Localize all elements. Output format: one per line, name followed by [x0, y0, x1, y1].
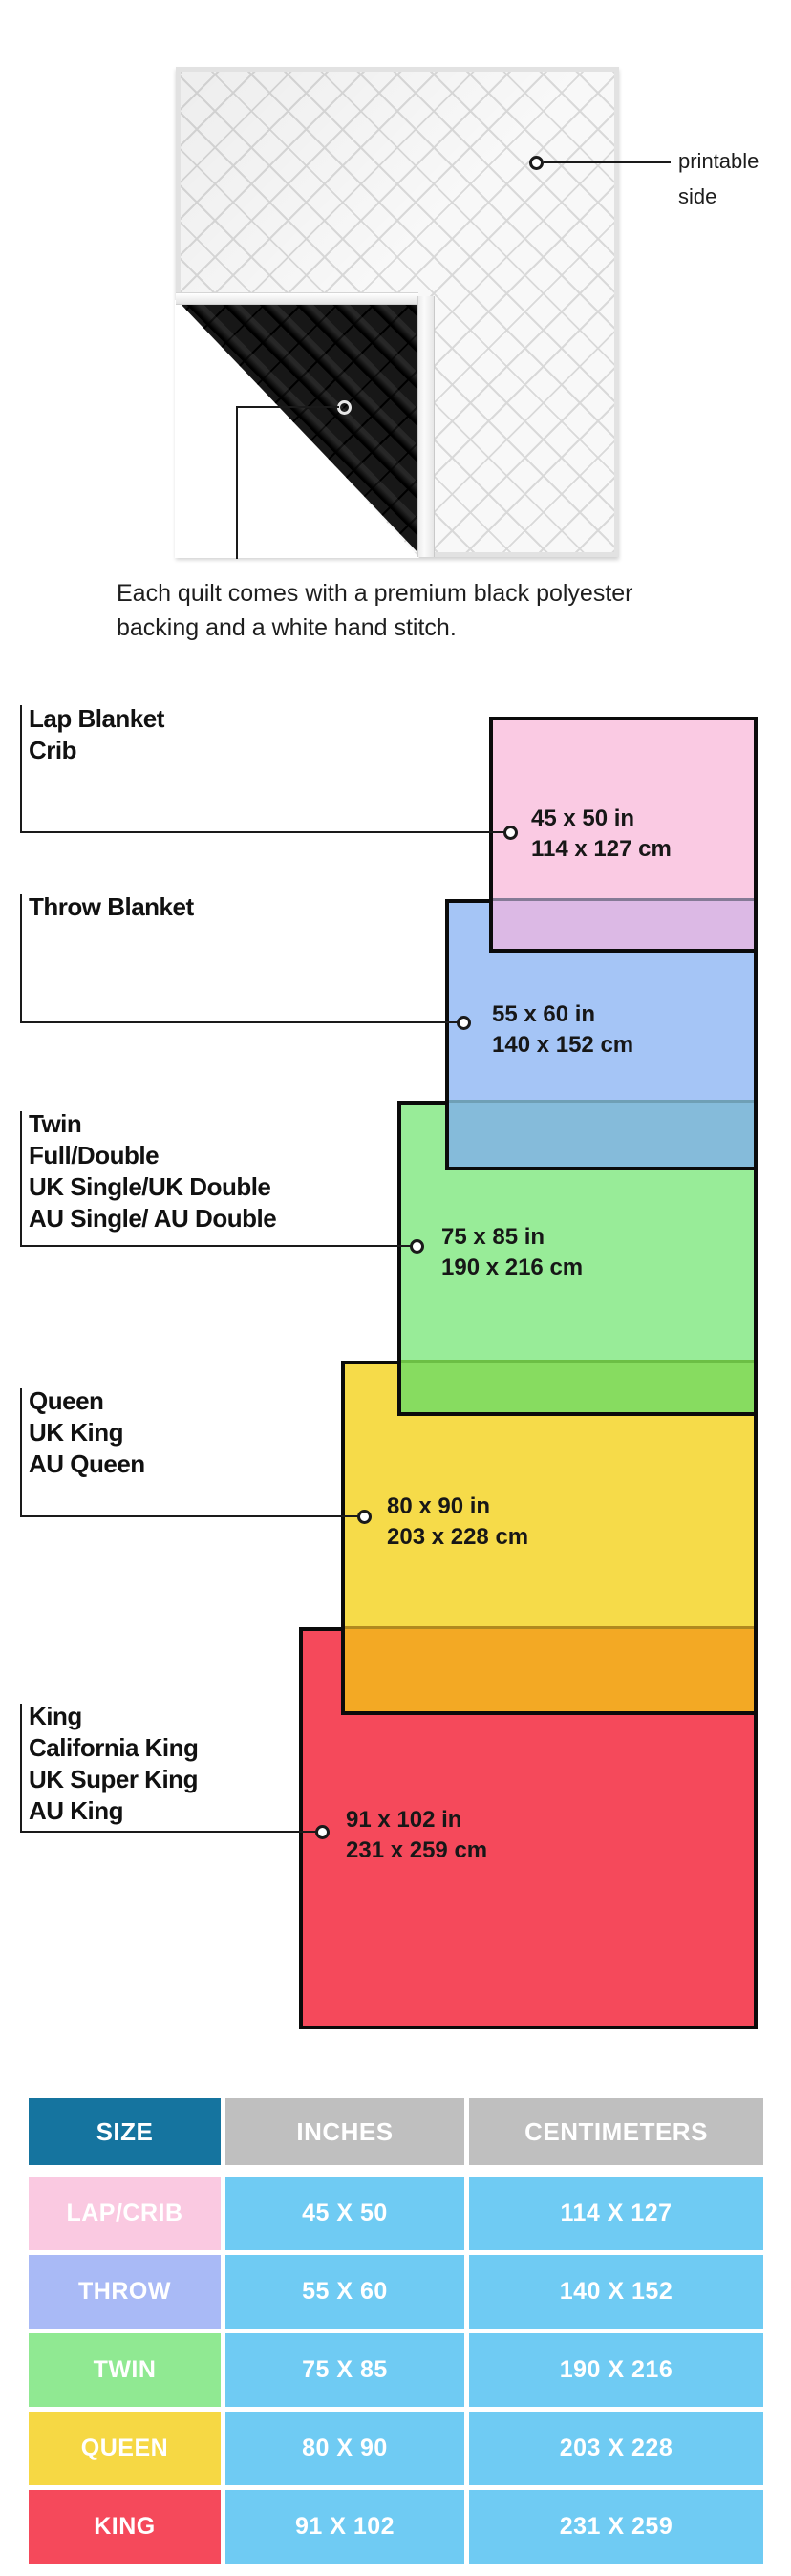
twin-marker-icon — [410, 1239, 424, 1254]
throw-over-twin-overlap — [449, 1100, 754, 1167]
table-row-throw-centimeters: 140 X 152 — [469, 2255, 763, 2329]
table-row-king-inches: 91 X 102 — [225, 2490, 464, 2564]
table-row-king-centimeters: 231 X 259 — [469, 2490, 763, 2564]
quilt-fold-flap-edge — [417, 296, 435, 557]
table-row-queen-size: QUEEN — [29, 2412, 221, 2485]
king-label-line: UK Super King — [29, 1764, 198, 1795]
queen-marker-icon — [357, 1510, 372, 1524]
king-label-line: AU King — [29, 1795, 198, 1827]
size-table: SIZE INCHES CENTIMETERS LAP/CRIB 45 X 50… — [29, 2098, 764, 2564]
king-leader-line-v — [20, 1704, 22, 1832]
table-header-inches: INCHES — [225, 2098, 464, 2165]
twin-over-queen-overlap — [401, 1360, 754, 1412]
king-leader-line-h — [20, 1831, 316, 1833]
lap-marker-icon — [503, 826, 518, 840]
twin-leader-line-v — [20, 1111, 22, 1246]
backing-caption: Each quilt comes with a premium black po… — [117, 576, 633, 645]
table-row-twin-size: TWIN — [29, 2333, 221, 2407]
throw-dimensions-cm: 140 x 152 cm — [492, 1030, 633, 1061]
queen-dimensions: 80 x 90 in 203 x 228 cm — [387, 1492, 528, 1553]
printable-side-marker-icon — [529, 156, 544, 170]
printable-side-label: printable side — [678, 143, 759, 214]
table-header-size: SIZE — [29, 2098, 221, 2165]
queen-label-line: AU Queen — [29, 1449, 145, 1480]
table-row-lap-size: LAP/CRIB — [29, 2177, 221, 2250]
printable-side-leader-line — [544, 161, 671, 163]
twin-label-line: Full/Double — [29, 1140, 276, 1171]
table-row-twin-inches: 75 X 85 — [225, 2333, 464, 2407]
black-backing-marker-icon — [337, 400, 352, 415]
lap-label-line: Crib — [29, 735, 164, 766]
queen-over-king-overlap — [345, 1626, 754, 1711]
throw-label-line: Throw Blanket — [29, 891, 194, 923]
throw-dimensions: 55 x 60 in 140 x 152 cm — [492, 999, 633, 1061]
twin-dimensions-cm: 190 x 216 cm — [441, 1253, 583, 1283]
table-row-throw-size: THROW — [29, 2255, 221, 2329]
king-label: King California King UK Super King AU Ki… — [29, 1701, 198, 1827]
printable-side-label-line2: side — [678, 179, 759, 214]
black-backing-leader-line-v — [236, 406, 238, 559]
king-dimensions-cm: 231 x 259 cm — [346, 1835, 487, 1866]
queen-dimensions-cm: 203 x 228 cm — [387, 1522, 528, 1553]
queen-leader-line-h — [20, 1515, 358, 1517]
throw-leader-line-h — [20, 1021, 458, 1023]
throw-label: Throw Blanket — [29, 891, 194, 923]
lap-dimensions: 45 x 50 in 114 x 127 cm — [531, 804, 672, 865]
lap-leader-line-v — [20, 705, 22, 832]
lap-label: Lap Blanket Crib — [29, 703, 164, 766]
table-row-queen-centimeters: 203 X 228 — [469, 2412, 763, 2485]
queen-label-line: Queen — [29, 1385, 145, 1417]
twin-label-line: AU Single/ AU Double — [29, 1203, 276, 1234]
twin-leader-line-h — [20, 1245, 411, 1247]
king-dimensions: 91 x 102 in 231 x 259 cm — [346, 1805, 487, 1866]
king-label-line: California King — [29, 1732, 198, 1764]
twin-dimensions-inches: 75 x 85 in — [441, 1222, 583, 1253]
table-row-lap-inches: 45 X 50 — [225, 2177, 464, 2250]
king-label-line: King — [29, 1701, 198, 1732]
lap-dimensions-cm: 114 x 127 cm — [531, 834, 672, 865]
quilt-size-guide-page: printable side Each quilt comes with a p… — [0, 0, 791, 2576]
quilt-fold-crease — [176, 292, 418, 305]
twin-dimensions: 75 x 85 in 190 x 216 cm — [441, 1222, 583, 1283]
lap-label-line: Lap Blanket — [29, 703, 164, 735]
table-row-twin-centimeters: 190 X 216 — [469, 2333, 763, 2407]
queen-label-line: UK King — [29, 1417, 145, 1449]
queen-leader-line-v — [20, 1388, 22, 1516]
lap-over-throw-overlap — [493, 898, 754, 949]
throw-dimensions-inches: 55 x 60 in — [492, 999, 633, 1030]
table-header-centimeters: CENTIMETERS — [469, 2098, 763, 2165]
printable-side-label-line1: printable — [678, 143, 759, 179]
king-marker-icon — [315, 1825, 330, 1839]
lap-dimensions-inches: 45 x 50 in — [531, 804, 672, 834]
lap-leader-line-h — [20, 831, 504, 833]
backing-caption-line1: Each quilt comes with a premium black po… — [117, 576, 633, 611]
throw-leader-line-v — [20, 894, 22, 1022]
black-backing-leader-line-h — [236, 406, 339, 408]
table-row-lap-centimeters: 114 X 127 — [469, 2177, 763, 2250]
table-row-king-size: KING — [29, 2490, 221, 2564]
queen-dimensions-inches: 80 x 90 in — [387, 1492, 528, 1522]
table-row-queen-inches: 80 X 90 — [225, 2412, 464, 2485]
king-dimensions-inches: 91 x 102 in — [346, 1805, 487, 1835]
throw-marker-icon — [457, 1016, 471, 1030]
twin-label-line: UK Single/UK Double — [29, 1171, 276, 1203]
twin-label-line: Twin — [29, 1108, 276, 1140]
backing-caption-line2: backing and a white hand stitch. — [117, 611, 633, 645]
queen-label: Queen UK King AU Queen — [29, 1385, 145, 1480]
twin-label: Twin Full/Double UK Single/UK Double AU … — [29, 1108, 276, 1234]
table-row-throw-inches: 55 X 60 — [225, 2255, 464, 2329]
